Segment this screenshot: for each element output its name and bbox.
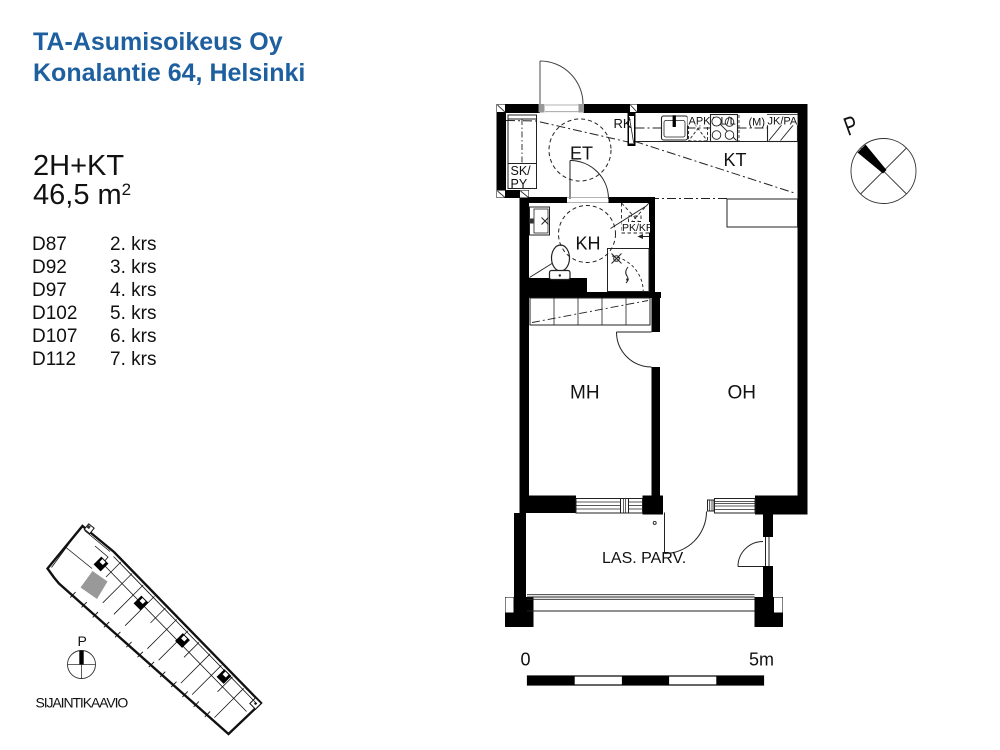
svg-text:MH: MH (570, 383, 600, 404)
svg-text:P: P (840, 109, 862, 141)
svg-text:KT: KT (724, 150, 747, 170)
svg-text:(M): (M) (749, 117, 766, 129)
svg-text:L/L: L/L (721, 116, 736, 128)
svg-text:SK/: SK/ (511, 164, 532, 178)
svg-text:P: P (78, 633, 87, 649)
svg-text:APK: APK (689, 116, 712, 128)
svg-text:KH: KH (576, 234, 601, 254)
svg-text:PK/KR: PK/KR (622, 222, 654, 234)
svg-text:PY: PY (511, 177, 528, 191)
svg-text:SIJAINTIKAAVIO: SIJAINTIKAAVIO (36, 695, 129, 711)
svg-text:5m: 5m (749, 650, 774, 670)
svg-text:RK: RK (614, 116, 632, 131)
svg-text:LAS. PARV.: LAS. PARV. (602, 550, 686, 567)
svg-text:0: 0 (521, 650, 531, 670)
svg-text:JK/PA: JK/PA (768, 116, 798, 128)
svg-text:OH: OH (728, 383, 757, 404)
